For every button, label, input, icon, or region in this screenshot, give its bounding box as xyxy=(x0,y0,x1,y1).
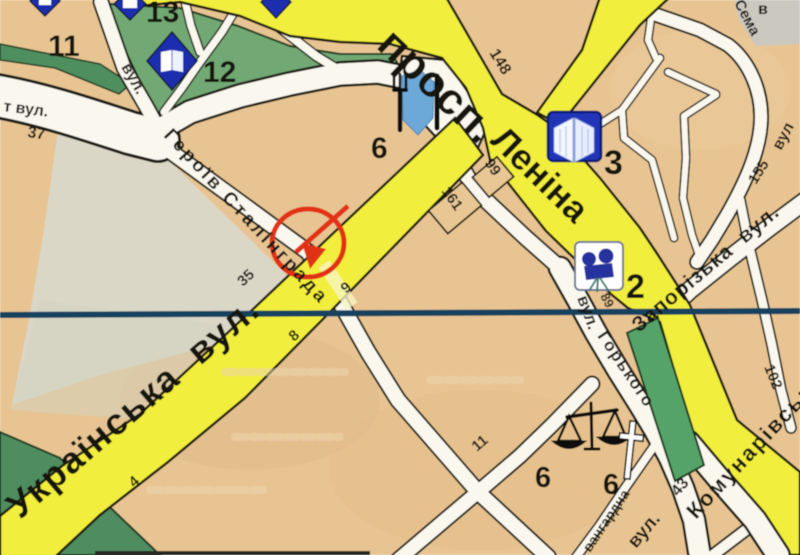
svg-text:2: 2 xyxy=(626,268,645,306)
svg-text:3: 3 xyxy=(604,144,623,182)
svg-text:37: 37 xyxy=(26,124,46,143)
svg-text:12: 12 xyxy=(203,56,236,89)
svg-text:13: 13 xyxy=(146,0,179,29)
svg-text:6: 6 xyxy=(535,462,551,494)
svg-text:6: 6 xyxy=(371,132,388,165)
svg-text:в: в xyxy=(758,1,768,18)
svg-text:11: 11 xyxy=(48,30,80,63)
